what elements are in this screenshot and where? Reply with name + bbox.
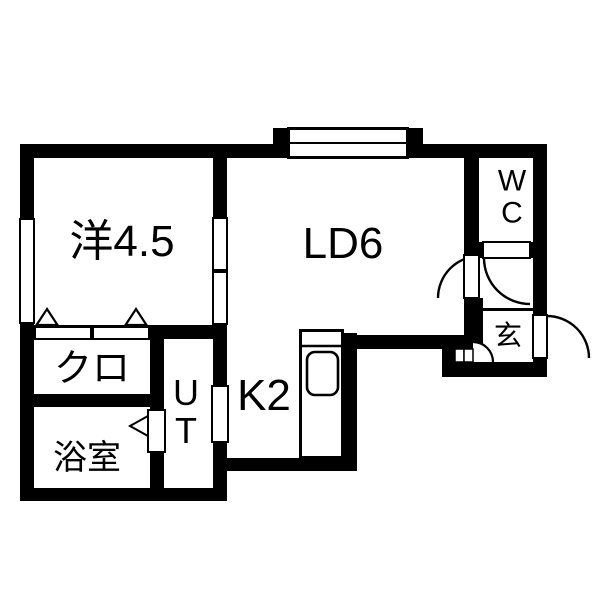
sliding-door-panel-upper	[213, 218, 227, 270]
utility-door-opening	[212, 386, 228, 442]
room-label-bathroom: 浴室	[53, 441, 121, 475]
room-label-western-room: 洋4.5	[69, 220, 174, 264]
floorplan-canvas: 洋4.5 LD6 K2 クロ 浴室 UT WC 玄	[0, 0, 600, 600]
room-label-entrance: 玄	[494, 322, 522, 350]
sliding-door-panel-lower	[213, 272, 227, 324]
closet-door-panel-left	[35, 327, 91, 339]
ld-hall-door-leaf	[464, 255, 479, 298]
closet-door-panel-right	[93, 327, 149, 339]
bathroom-door-marker	[130, 416, 148, 436]
closet-marker-triangle-right	[126, 309, 147, 325]
room-label-toilet: WC	[494, 166, 530, 229]
room-label-closet: クロ	[54, 350, 130, 388]
room-label-kitchen: K2	[237, 374, 291, 418]
entrance-door-leaf	[533, 315, 547, 358]
room-label-utility: UT	[165, 374, 207, 450]
entry-step-block-1	[455, 349, 464, 362]
wc-door-leaf	[483, 242, 530, 258]
closet-marker-triangle-left	[37, 309, 58, 325]
floorplan-symbols	[0, 0, 600, 600]
window-left	[20, 219, 34, 323]
room-label-living-dining: LD6	[303, 222, 384, 266]
entry-step-block-2	[464, 349, 473, 362]
kitchen-sink	[307, 352, 338, 395]
bathroom-door-opening	[148, 410, 165, 452]
